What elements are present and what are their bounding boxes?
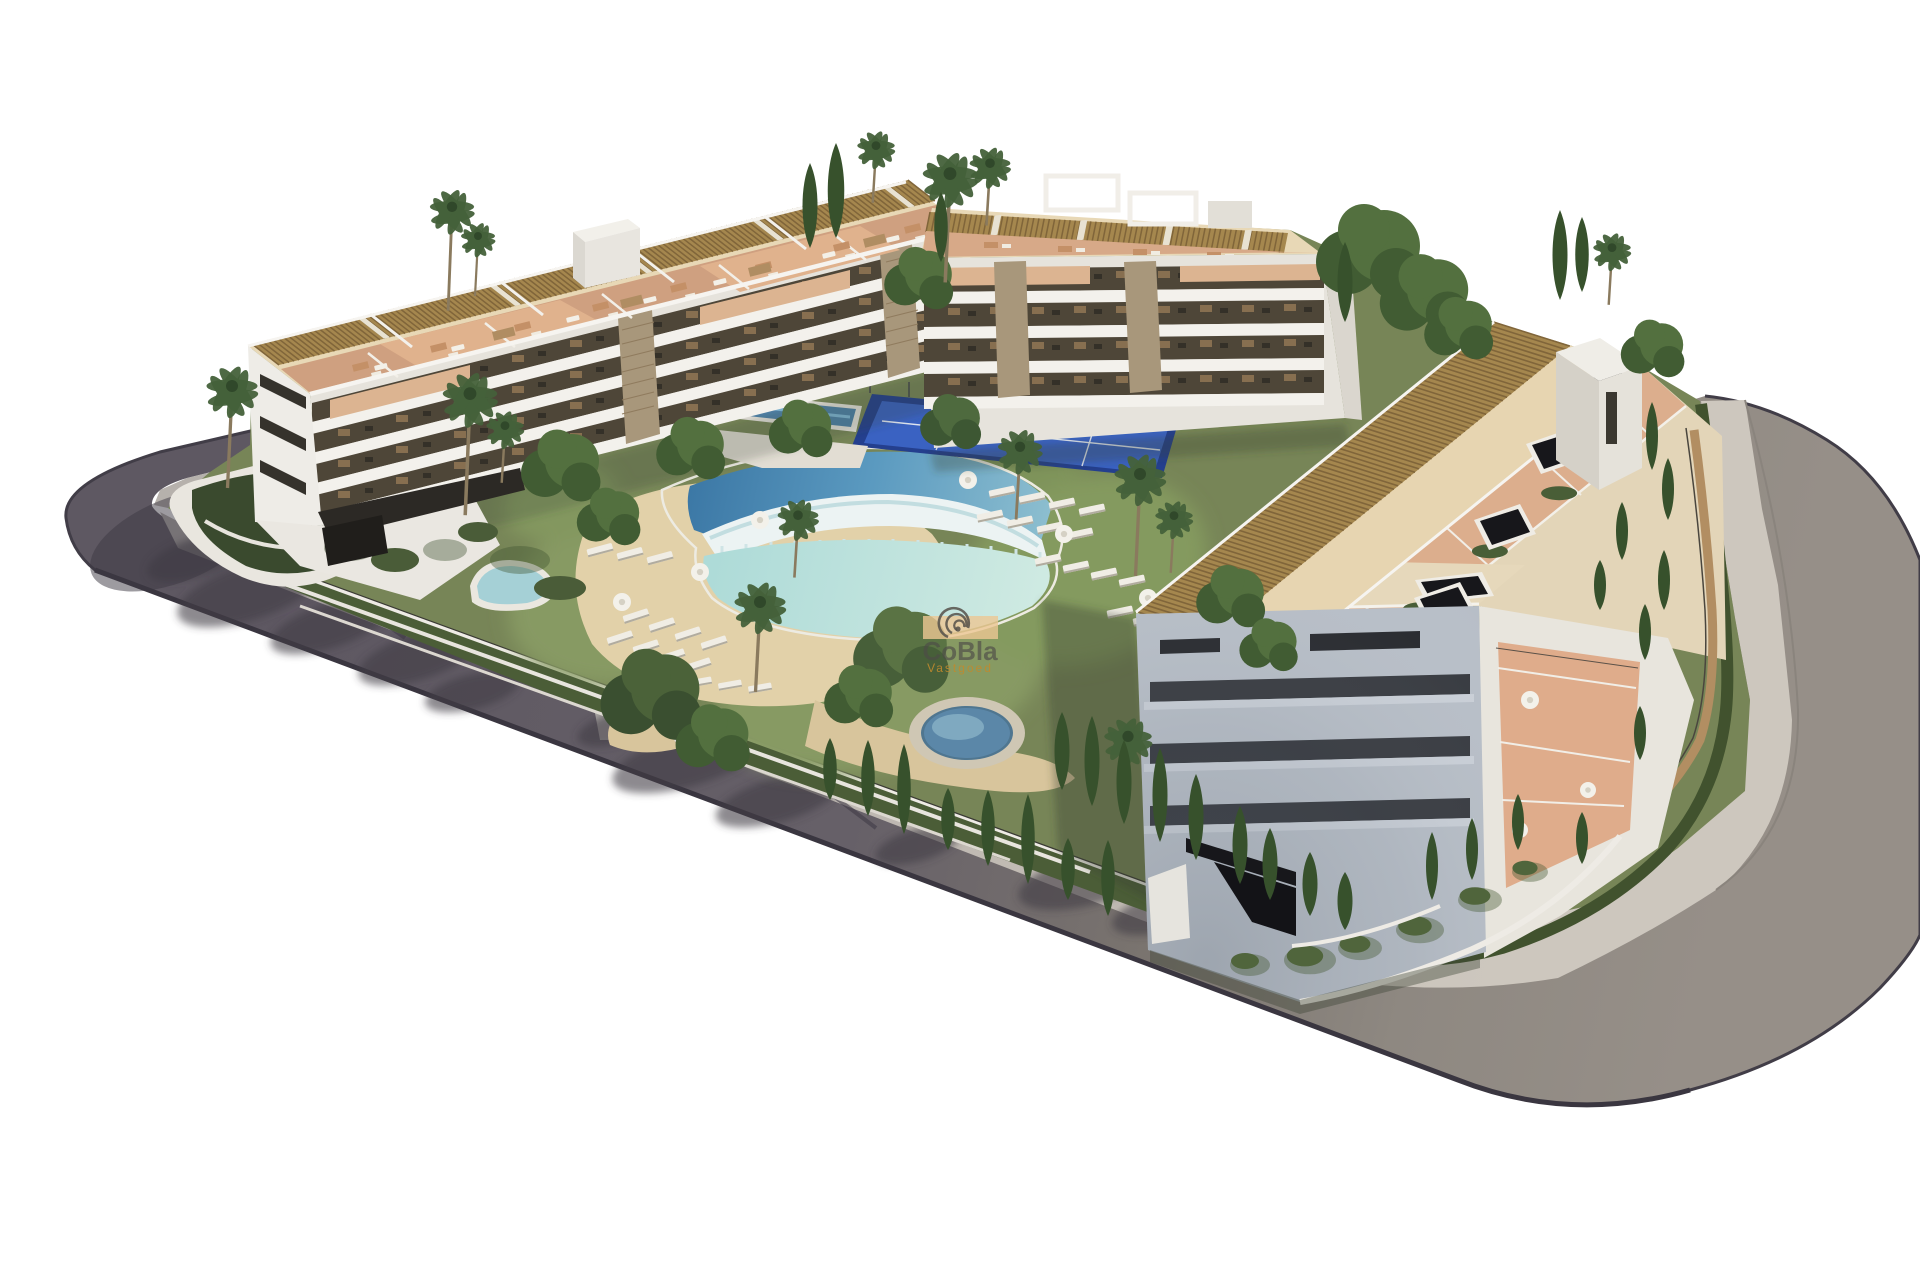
svg-text:Vastgoed: Vastgoed bbox=[927, 661, 993, 675]
